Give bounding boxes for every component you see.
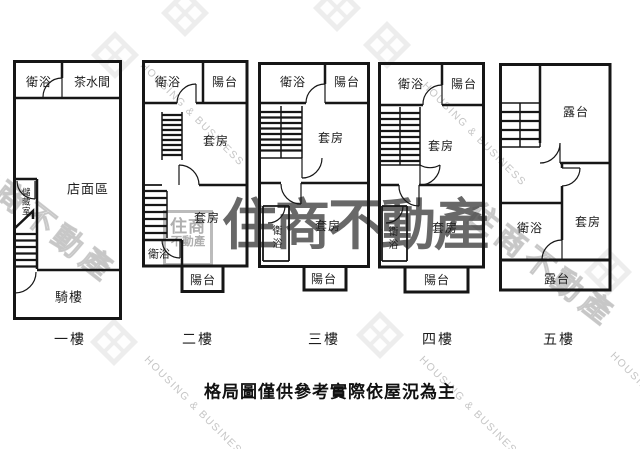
- floor-label-4f: 四樓: [422, 334, 454, 348]
- room-label-suite-lower-2f: 套房: [194, 212, 220, 224]
- room-label-terrace-top-5f: 露台: [563, 106, 589, 118]
- room-label-balcony-top-4f: 陽台: [451, 78, 477, 90]
- room-label-bathroom-bottom-3f: 衛浴: [270, 225, 280, 251]
- room-label-suite-upper-3f: 套房: [318, 132, 344, 144]
- floor-plan-image: HOUSING & BUSINESS HOUSING & BUSINESS HO…: [0, 0, 640, 449]
- room-label-balcony-bottom-2f: 陽台: [190, 274, 216, 286]
- room-label-balcony-bottom-4f: 陽台: [424, 274, 450, 286]
- room-label-bathroom-bottom-2f: 衛浴: [148, 250, 170, 261]
- room-label-bathroom-1f: 衛浴: [26, 76, 52, 88]
- room-label-suite-upper-2f: 套房: [203, 135, 229, 147]
- room-label-storefront-1f: 店面區: [67, 183, 109, 196]
- floor-label-1f: 一樓: [54, 334, 86, 348]
- floor-label-2f: 二樓: [182, 334, 214, 348]
- room-label-bathroom-top-2f: 衛浴: [155, 76, 181, 88]
- room-label-pantry-1f: 茶水間: [74, 76, 110, 88]
- room-label-bathroom-bottom-4f: 衛浴: [386, 226, 396, 252]
- floor-label-3f: 三樓: [308, 334, 340, 348]
- room-label-bathroom-5f: 衛浴: [517, 222, 543, 234]
- room-label-suite-lower-3f: 套房: [315, 220, 341, 232]
- room-label-suite-5f: 套房: [575, 216, 601, 228]
- room-label-storage-1f: 儲藏室: [22, 188, 31, 217]
- room-label-balcony-bottom-3f: 陽台: [311, 273, 337, 285]
- room-label-balcony-top-3f: 陽台: [334, 76, 360, 88]
- room-label-suite-lower-4f: 套房: [432, 222, 458, 234]
- room-label-balcony-top-2f: 陽台: [212, 76, 238, 88]
- disclaimer-text: 格局圖僅供參考實際依屋況為主: [204, 384, 456, 401]
- room-label-arcade-1f: 騎樓: [55, 291, 83, 304]
- label-layer: 衛浴 茶水間 店面區 儲藏室 騎樓 一樓 衛浴 陽台 套房 套房 衛浴 陽台 二…: [0, 0, 640, 449]
- room-label-bathroom-top-3f: 衛浴: [280, 76, 306, 88]
- room-label-bathroom-top-4f: 衛浴: [398, 78, 424, 90]
- room-label-terrace-bottom-5f: 露台: [544, 273, 570, 285]
- floor-label-5f: 五樓: [543, 334, 575, 348]
- room-label-suite-upper-4f: 套房: [428, 140, 454, 152]
